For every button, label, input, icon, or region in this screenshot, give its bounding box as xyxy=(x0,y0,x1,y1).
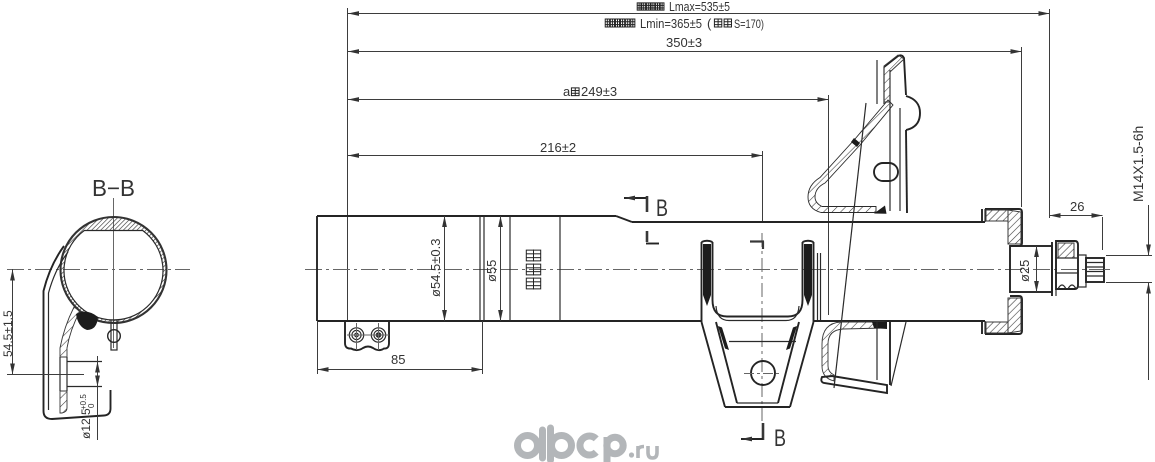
svg-text:ø54.5±0.3: ø54.5±0.3 xyxy=(428,239,443,297)
svg-text:a: a xyxy=(563,84,571,99)
svg-text:26: 26 xyxy=(1070,199,1084,214)
svg-text:85: 85 xyxy=(391,352,405,367)
svg-text:350±3: 350±3 xyxy=(666,35,702,50)
svg-text:ø12.5: ø12.5 xyxy=(79,408,93,439)
svg-text:B−B: B−B xyxy=(92,175,135,201)
svg-text:0: 0 xyxy=(87,403,96,408)
svg-text:ø55: ø55 xyxy=(484,260,499,282)
svg-text:Lmax=535±5: Lmax=535±5 xyxy=(669,0,730,14)
svg-text:Lmin=365±5: Lmin=365±5 xyxy=(640,16,702,31)
svg-text:S=170): S=170) xyxy=(734,17,764,31)
svg-text:B: B xyxy=(774,425,786,452)
svg-text:B: B xyxy=(656,195,668,222)
svg-text:(: ( xyxy=(707,16,712,31)
svg-text:216±2: 216±2 xyxy=(540,140,576,155)
svg-text:249±3: 249±3 xyxy=(581,84,617,99)
svg-text:ø25: ø25 xyxy=(1017,260,1032,282)
svg-text:54.5±1.5: 54.5±1.5 xyxy=(1,310,15,357)
svg-text:M14X1.5-6h: M14X1.5-6h xyxy=(1130,126,1146,202)
